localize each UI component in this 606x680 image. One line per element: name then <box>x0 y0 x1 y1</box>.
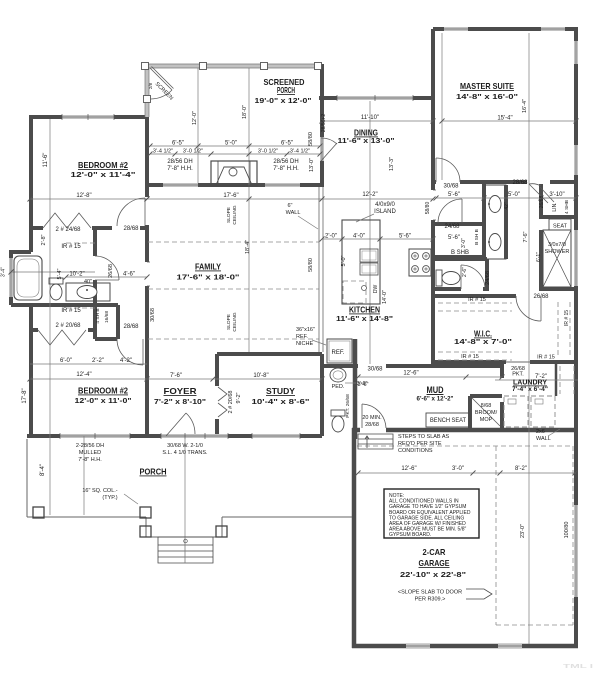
svg-text:5'-0": 5'-0" <box>508 192 520 198</box>
svg-text:ISLAND: ISLAND <box>374 209 396 215</box>
svg-text:28/56 DH: 28/56 DH <box>167 159 192 165</box>
svg-text:14'-0": 14'-0" <box>382 290 388 304</box>
svg-text:11'-6" x 13'-0": 11'-6" x 13'-0" <box>338 136 395 145</box>
svg-text:GYPSUM BOARD.: GYPSUM BOARD. <box>389 532 431 538</box>
svg-text:12'-0": 12'-0" <box>192 111 198 125</box>
svg-text:S.L. 4 1/0 TRANS.: S.L. 4 1/0 TRANS. <box>162 450 208 456</box>
svg-text:TML I: TML I <box>563 664 594 670</box>
svg-text:PORCH: PORCH <box>140 468 167 477</box>
svg-text:58/80: 58/80 <box>308 258 314 272</box>
svg-text:2 # 24/68: 2 # 24/68 <box>55 227 81 233</box>
svg-text:IR # 15: IR # 15 <box>461 354 479 360</box>
svg-text:B SH B: B SH B <box>474 229 480 245</box>
svg-text:SLOPE: SLOPE <box>226 207 232 223</box>
svg-text:SLOPE: SLOPE <box>226 314 232 330</box>
svg-text:30/68: 30/68 <box>367 367 383 373</box>
svg-text:8'-2": 8'-2" <box>515 466 527 472</box>
svg-text:<SLOPE SLAB TO DOOR: <SLOPE SLAB TO DOOR <box>398 590 462 596</box>
svg-text:SEAT: SEAT <box>553 224 568 230</box>
svg-text:CEILING: CEILING <box>232 312 238 331</box>
svg-text:2'-8": 2'-8" <box>41 234 47 245</box>
svg-text:4/0x9/0: 4/0x9/0 <box>375 202 395 208</box>
svg-text:6": 6" <box>287 203 292 209</box>
svg-text:3/0x7/0: 3/0x7/0 <box>548 242 566 248</box>
svg-text:BEDROOM #2: BEDROOM #2 <box>78 161 128 170</box>
svg-text:7'-2": 7'-2" <box>535 374 547 380</box>
svg-text:PKT. 26/68: PKT. 26/68 <box>345 394 351 418</box>
svg-text:3'-0 1/2": 3'-0 1/2" <box>183 149 203 155</box>
svg-text:17'-6": 17'-6" <box>223 193 238 199</box>
svg-text:5'-6": 5'-6" <box>448 235 460 241</box>
svg-text:30/68: 30/68 <box>443 184 459 190</box>
svg-text:20 MIN.: 20 MIN. <box>362 415 382 421</box>
svg-text:6'-1": 6'-1" <box>536 252 542 262</box>
svg-text:REF.: REF. <box>331 350 344 356</box>
svg-text:6'-0": 6'-0" <box>60 358 72 364</box>
svg-text:14'-8" x 7'-0": 14'-8" x 7'-0" <box>454 337 512 346</box>
svg-text:26/68: 26/68 <box>108 264 114 278</box>
svg-text:58/80: 58/80 <box>308 132 314 146</box>
svg-text:5'-6": 5'-6" <box>399 234 411 240</box>
svg-text:12'-0" x 11'-4": 12'-0" x 11'-4" <box>71 170 136 179</box>
svg-text:5'-0": 5'-0" <box>341 255 347 266</box>
svg-text:(TYP.): (TYP.) <box>102 495 117 501</box>
svg-text:4'-0": 4'-0" <box>353 234 365 240</box>
svg-text:16'-4": 16'-4" <box>522 99 528 113</box>
svg-text:BENCH SEAT: BENCH SEAT <box>430 418 466 424</box>
svg-text:2x6: 2x6 <box>536 429 545 435</box>
svg-text:IR # 15: IR # 15 <box>468 297 486 303</box>
svg-text:4'-6": 4'-6" <box>123 272 135 278</box>
svg-text:6'-6" x 12'-2": 6'-6" x 12'-2" <box>417 396 454 403</box>
svg-text:FOYER: FOYER <box>164 387 197 396</box>
svg-text:8/68: 8/68 <box>481 403 492 409</box>
svg-text:3'-0 1/2": 3'-0 1/2" <box>258 149 278 155</box>
svg-text:3'-6": 3'-6" <box>357 381 368 387</box>
svg-text:CEILING: CEILING <box>232 205 238 224</box>
svg-text:B SHB: B SHB <box>451 250 469 256</box>
svg-text:2'-0": 2'-0" <box>325 234 337 240</box>
svg-text:28/56+2: 28/56+2 <box>321 114 327 132</box>
svg-text:BROOM/: BROOM/ <box>475 410 498 416</box>
svg-text:3'-4 1/2": 3'-4 1/2" <box>290 149 310 155</box>
svg-text:30/68 W. 2-1/0: 30/68 W. 2-1/0 <box>167 443 203 449</box>
svg-text:BEDROOM #2: BEDROOM #2 <box>78 387 128 396</box>
svg-text:2 # 20/68: 2 # 20/68 <box>228 391 234 414</box>
svg-text:MULLED: MULLED <box>79 450 101 456</box>
svg-text:40": 40" <box>84 279 92 285</box>
svg-text:3'-4 1/2": 3'-4 1/2" <box>153 149 173 155</box>
svg-text:18'-4": 18'-4" <box>245 240 251 254</box>
svg-text:2'-2": 2'-2" <box>92 358 104 364</box>
svg-text:7'-6": 7'-6" <box>523 231 529 242</box>
svg-text:42": 42" <box>504 202 510 210</box>
svg-text:STUDY: STUDY <box>266 387 296 396</box>
svg-text:IR # 15: IR # 15 <box>61 308 81 314</box>
svg-text:2 # 20/68: 2 # 20/68 <box>55 323 81 329</box>
svg-text:23'-0": 23'-0" <box>520 524 526 538</box>
svg-text:12'-6": 12'-6" <box>403 371 418 377</box>
svg-text:IR # 15: IR # 15 <box>61 244 81 250</box>
svg-text:3'-0": 3'-0" <box>461 238 467 248</box>
svg-text:6'-5": 6'-5" <box>281 141 293 147</box>
svg-text:15'-4": 15'-4" <box>497 116 512 122</box>
svg-text:12'-0" x 11'-0": 12'-0" x 11'-0" <box>75 396 132 405</box>
svg-text:12'-4": 12'-4" <box>76 372 91 378</box>
svg-text:11'-6": 11'-6" <box>43 153 49 168</box>
svg-text:7'-4" x 6'-4": 7'-4" x 6'-4" <box>512 386 548 393</box>
svg-text:6'-5": 6'-5" <box>172 141 184 147</box>
svg-text:12'-8": 12'-8" <box>76 193 91 199</box>
svg-text:5'-6": 5'-6" <box>448 192 460 198</box>
svg-text:11'-10": 11'-10" <box>361 115 379 121</box>
svg-text:7'-6": 7'-6" <box>170 373 182 379</box>
svg-text:12'-6": 12'-6" <box>401 466 416 472</box>
svg-text:DW: DW <box>373 285 379 294</box>
svg-text:24/68: 24/68 <box>485 271 491 285</box>
svg-text:5'-4": 5'-4" <box>57 268 63 279</box>
svg-text:PER R309.>: PER R309.> <box>415 597 446 603</box>
svg-text:IR # 15: IR # 15 <box>537 355 555 361</box>
svg-text:28/68: 28/68 <box>123 324 139 330</box>
svg-text:3'-10": 3'-10" <box>549 192 564 198</box>
svg-text:28/68: 28/68 <box>512 180 528 186</box>
svg-text:STEPS TO SLAB AS: STEPS TO SLAB AS <box>398 434 449 440</box>
svg-text:9'-2": 9'-2" <box>236 392 242 403</box>
svg-text:WALL: WALL <box>536 436 551 442</box>
svg-text:4'-2": 4'-2" <box>120 358 132 364</box>
svg-text:IR # 15: IR # 15 <box>564 310 570 326</box>
svg-text:CONDITIONS: CONDITIONS <box>398 448 433 454</box>
svg-text:14'-8" x 16'-0": 14'-8" x 16'-0" <box>456 92 518 101</box>
svg-text:REQ'D PER SITE: REQ'D PER SITE <box>398 441 442 447</box>
svg-text:5'-0": 5'-0" <box>225 141 237 147</box>
svg-text:17'-6" x 18'-0": 17'-6" x 18'-0" <box>177 273 240 282</box>
svg-text:3'-0": 3'-0" <box>452 466 464 472</box>
svg-text:7'-8" H.H.: 7'-8" H.H. <box>78 457 102 463</box>
svg-text:10'-2": 10'-2" <box>69 272 84 278</box>
svg-text:2-CAR: 2-CAR <box>423 548 446 557</box>
svg-text:PED.: PED. <box>332 384 345 390</box>
svg-text:28/68: 28/68 <box>365 422 379 428</box>
svg-text:28/56 DH: 28/56 DH <box>273 159 298 165</box>
svg-text:30/68: 30/68 <box>150 308 156 322</box>
svg-text:13'-3": 13'-3" <box>389 157 395 171</box>
svg-text:18'-0": 18'-0" <box>242 105 248 119</box>
svg-text:NICHE: NICHE <box>296 341 313 347</box>
svg-text:MASTER SUITE: MASTER SUITE <box>460 82 514 91</box>
svg-text:3'-4": 3'-4" <box>1 267 7 277</box>
svg-text:2'-6": 2'-6" <box>462 267 468 277</box>
svg-text:10'-4" x 8'-6": 10'-4" x 8'-6" <box>252 397 310 406</box>
svg-text:16/68: 16/68 <box>104 311 110 323</box>
svg-text:7'-8" H.H.: 7'-8" H.H. <box>167 166 193 172</box>
svg-text:2-28/56 DH: 2-28/56 DH <box>76 443 104 449</box>
svg-text:2/8: 2/8 <box>148 82 153 89</box>
svg-text:8'-4": 8'-4" <box>40 464 46 476</box>
svg-text:13'-0": 13'-0" <box>309 158 315 172</box>
svg-text:MUD: MUD <box>427 384 444 395</box>
svg-text:26/68: 26/68 <box>533 294 549 300</box>
svg-text:17'-8": 17'-8" <box>22 388 28 403</box>
svg-text:58/80: 58/80 <box>425 202 431 215</box>
svg-text:PKT.: PKT. <box>512 372 524 378</box>
svg-text:24/68: 24/68 <box>444 224 460 230</box>
svg-text:16" SQ. COL.-: 16" SQ. COL.- <box>82 488 117 494</box>
svg-text:22'-10" x 22'-8": 22'-10" x 22'-8" <box>400 570 466 579</box>
svg-text:11'-6" x 14'-8": 11'-6" x 14'-8" <box>336 314 393 323</box>
svg-text:WALL: WALL <box>286 210 301 216</box>
svg-text:100/80: 100/80 <box>564 522 570 539</box>
svg-text:REF.: REF. <box>296 334 308 340</box>
svg-text:4 SH B: 4 SH B <box>95 308 101 323</box>
svg-text:GARAGE: GARAGE <box>419 559 450 568</box>
svg-text:26/68: 26/68 <box>539 196 545 209</box>
svg-text:MOP: MOP <box>480 417 493 423</box>
svg-text:7'-8" H.H.: 7'-8" H.H. <box>273 166 299 172</box>
svg-text:SHOWER: SHOWER <box>545 249 570 255</box>
svg-text:28/68: 28/68 <box>123 226 139 232</box>
svg-text:4 SHB: 4 SHB <box>564 200 570 214</box>
svg-text:FAMILY: FAMILY <box>195 263 221 272</box>
svg-text:7'-2" x 8'-10": 7'-2" x 8'-10" <box>154 397 206 406</box>
svg-text:36"x16": 36"x16" <box>296 327 315 333</box>
svg-text:10'-8": 10'-8" <box>253 373 268 379</box>
svg-text:12'-2": 12'-2" <box>362 192 377 198</box>
svg-text:LIN.: LIN. <box>552 202 558 211</box>
svg-text:PORCH: PORCH <box>277 86 295 95</box>
svg-text:19'-0" x 12'-0": 19'-0" x 12'-0" <box>255 96 312 105</box>
